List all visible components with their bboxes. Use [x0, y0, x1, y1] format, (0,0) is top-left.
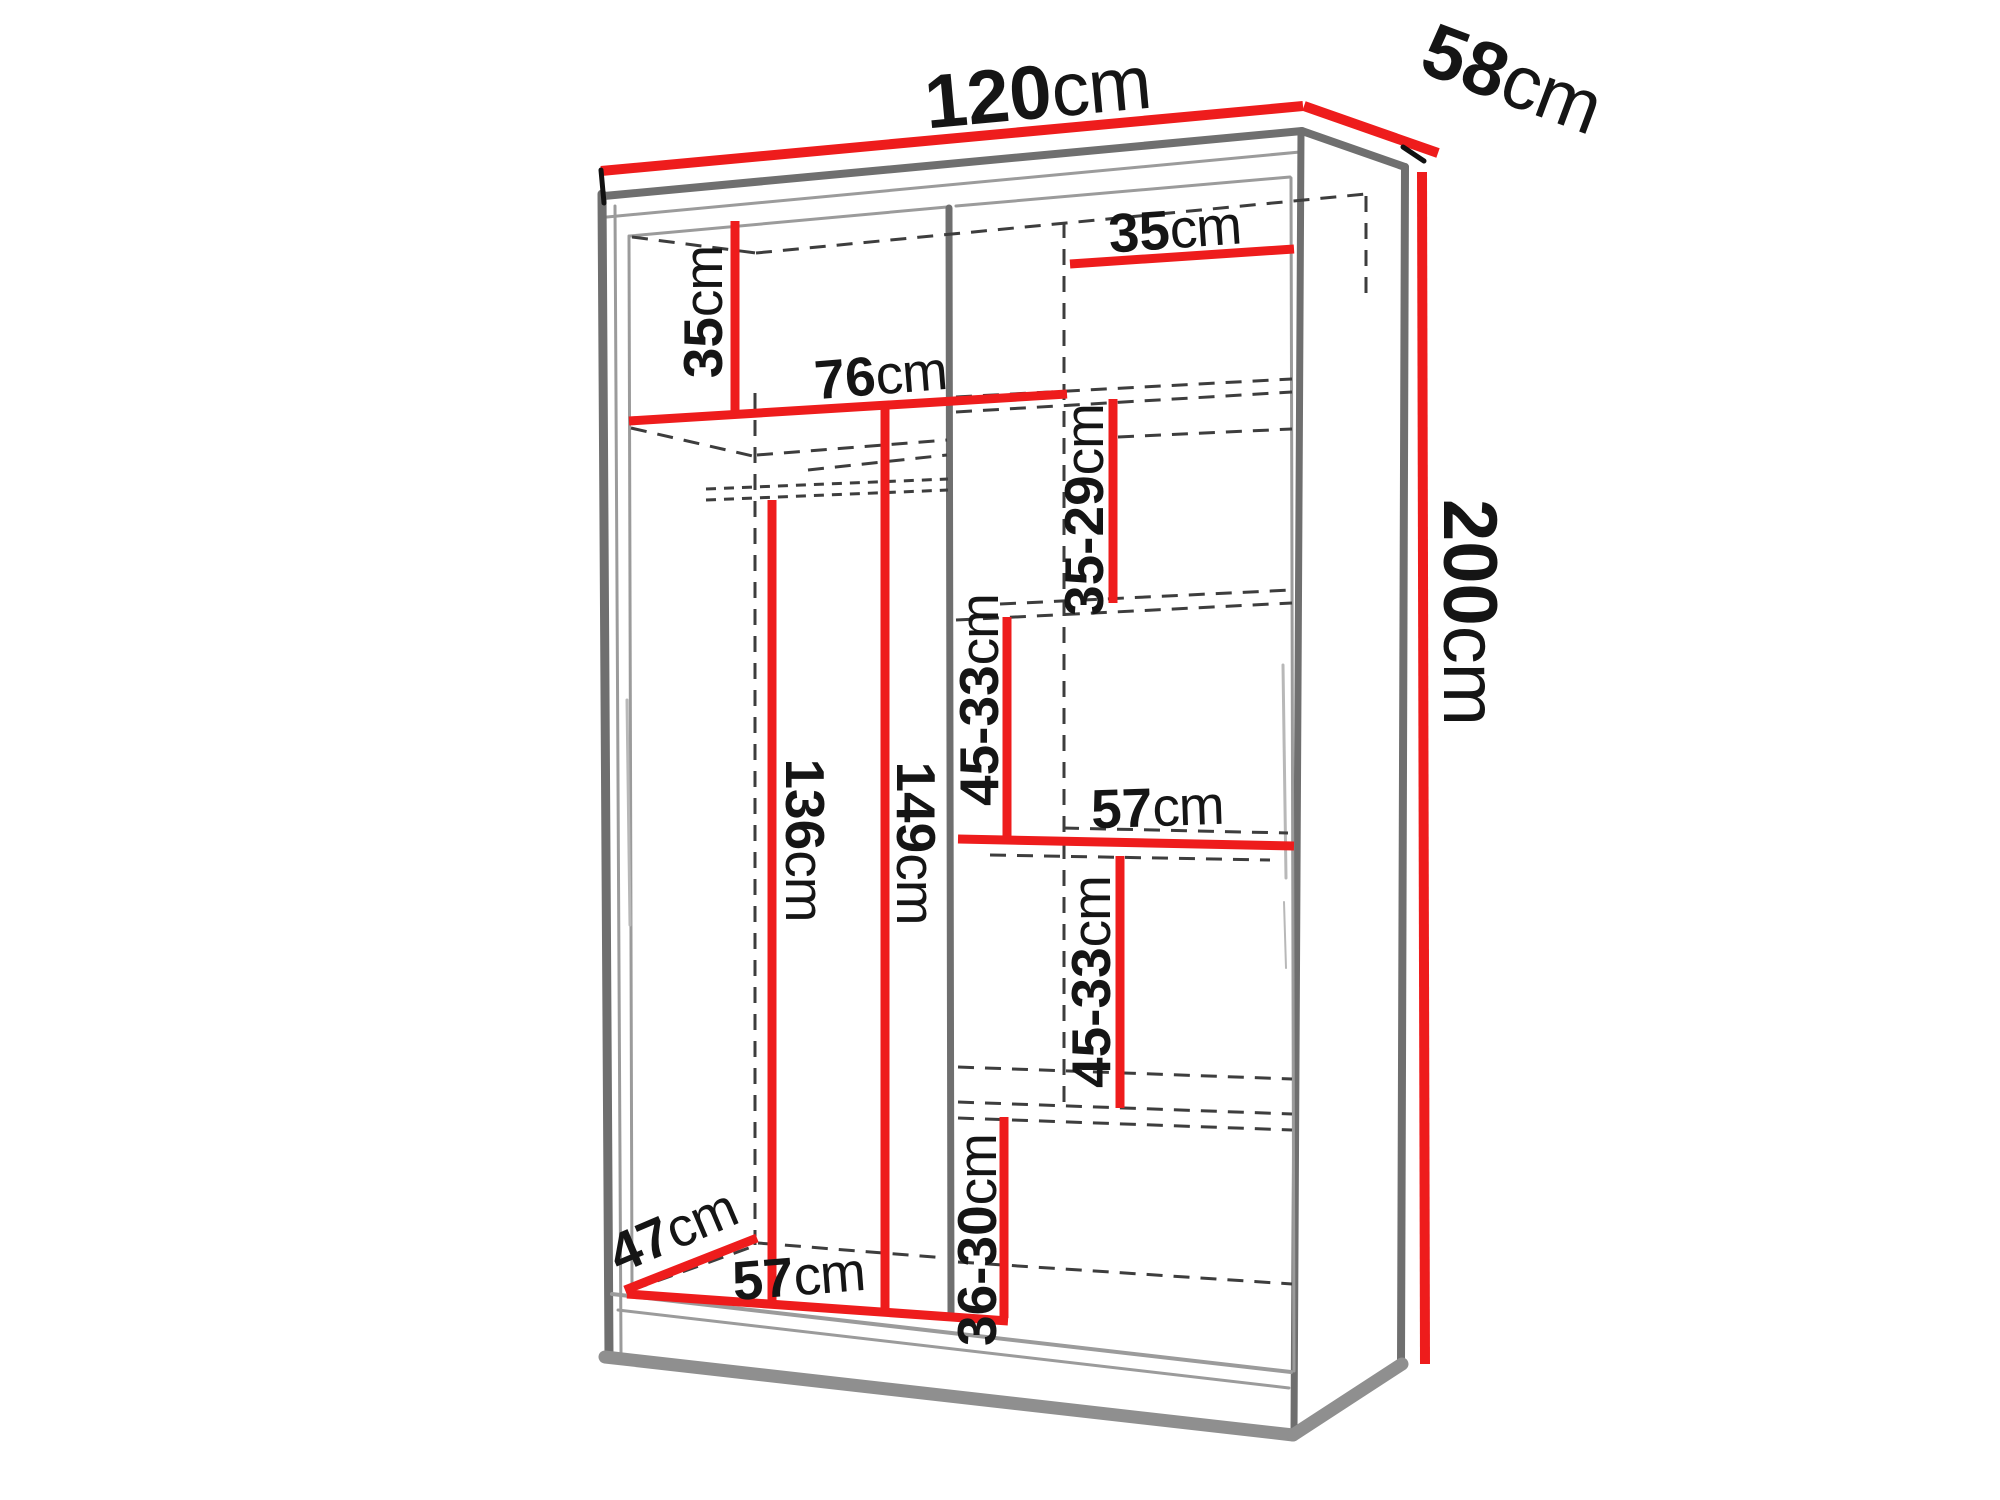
interior-right-wall-edge: [1291, 178, 1294, 1371]
dim-line-height-200: [1422, 172, 1425, 1364]
left-shelf-depth-diagonal: [631, 428, 757, 457]
wardrobe-diagram-canvas: 120cm 58cm 200cm 35cm 76cm 35cm 35-29cm …: [0, 0, 2000, 1500]
label-overall-depth: 58cm: [1411, 7, 1613, 151]
label-right-shelf-width: 57cm: [1090, 774, 1225, 841]
dim-line-shelf-57: [958, 839, 1294, 846]
label-right-gap-1: 35-29cm: [1053, 404, 1115, 616]
label-left-section-height: 149cm: [885, 761, 947, 924]
right-shelf4-front: [958, 1067, 1292, 1079]
label-overall-width: 120cm: [921, 40, 1154, 146]
label-right-gap-4: 36-30cm: [946, 1134, 1008, 1346]
dimension-labels: 120cm 58cm 200cm 35cm 76cm 35cm 35-29cm …: [599, 7, 1612, 1346]
front-left-outer-edge: [602, 194, 609, 1357]
left-shelf-back-edge-2: [808, 455, 947, 470]
back-wall-top-edge: [756, 194, 1366, 253]
left-shelf-back-edge: [757, 440, 947, 455]
interior-left-wall-edge: [629, 236, 632, 1292]
label-right-gap-2: 45-33cm: [948, 594, 1010, 806]
right-door-shine-2: [1284, 902, 1286, 968]
dim-line-depth-58: [1304, 106, 1438, 153]
side-back-edge: [1401, 167, 1405, 1363]
right-shelf3-under: [990, 855, 1270, 860]
dim-tick-left: [601, 170, 604, 203]
label-hanging-height: 136cm: [774, 758, 836, 921]
front-left-inner-edge: [615, 206, 621, 1352]
wardrobe-dimension-diagram: 120cm 58cm 200cm 35cm 76cm 35cm 35-29cm …: [0, 0, 2000, 1500]
hanging-rail-bottom: [706, 490, 948, 500]
right-shelf4-mid: [958, 1102, 1292, 1114]
label-hanging-width: 76cm: [812, 339, 949, 411]
plinth-bottom-shadow: [605, 1357, 1293, 1435]
label-left-section-width: 57cm: [730, 1240, 867, 1312]
right-shelf2-front: [1000, 590, 1292, 604]
label-left-top-section: 35cm: [672, 246, 734, 379]
right-shelf1-back: [1118, 429, 1292, 437]
label-right-gap-3: 45-33cm: [1060, 876, 1122, 1088]
label-overall-height: 200cm: [1427, 499, 1512, 725]
side-bottom-shadow: [1293, 1364, 1402, 1435]
hanging-rail-top: [706, 479, 948, 489]
label-right-top-shelf: 35cm: [1106, 193, 1243, 264]
